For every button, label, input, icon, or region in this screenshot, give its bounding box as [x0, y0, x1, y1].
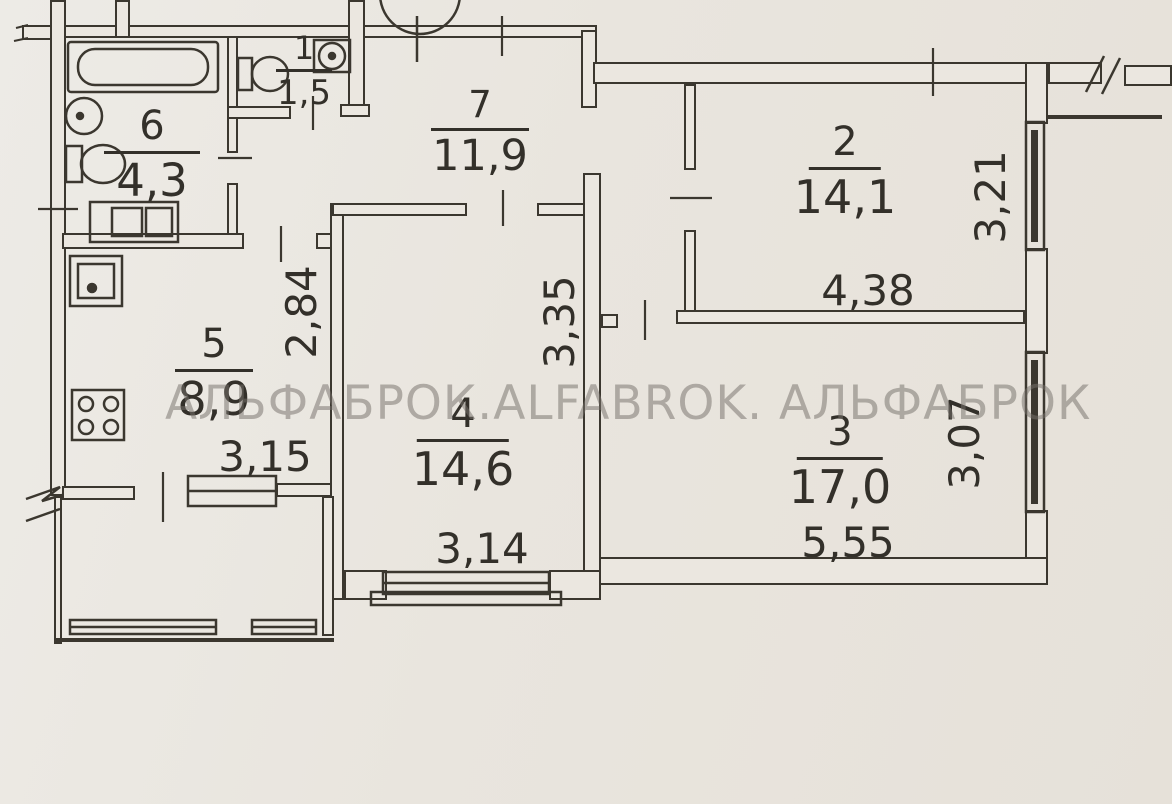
- room-7-label: 7 11,9: [431, 86, 529, 178]
- dim-room4-depth: 3,35: [539, 275, 581, 369]
- room-number: 5: [201, 324, 226, 364]
- stove: [72, 390, 124, 440]
- room-number: 6: [139, 106, 164, 146]
- room-number: 1: [294, 32, 314, 64]
- balcony-glazing: [70, 620, 316, 634]
- break-mark-top-right: [1086, 56, 1120, 94]
- room-number: 7: [468, 86, 492, 123]
- dim-room4-width: 3,14: [435, 528, 529, 570]
- dim-kitchen-depth: 2,84: [281, 265, 323, 359]
- bathroom-sink: [66, 98, 102, 134]
- room-area: 14,1: [794, 174, 896, 220]
- break-mark-left: [26, 487, 62, 521]
- kitchen-sink: [70, 256, 122, 306]
- break-mark-top-left: [14, 25, 28, 41]
- room-area: 1,5: [277, 76, 331, 110]
- vent-circle: [380, 0, 460, 62]
- dim-room2-width: 4,38: [821, 270, 915, 312]
- room-2-label: 2 14,1: [794, 122, 896, 220]
- room-number: 2: [832, 122, 857, 162]
- dim-kitchen-width: 3,15: [218, 436, 312, 478]
- bathtub: [68, 42, 218, 92]
- dim-room2-depth: 3,21: [970, 150, 1012, 244]
- floor-plan-photo: 6 4,3 1 1,5 7 11,9 2 14,1 5 8,9 4 14,6 3…: [0, 0, 1172, 804]
- washing-machine: [90, 202, 178, 242]
- fraction-line: [276, 69, 332, 72]
- room-area: 11,9: [432, 135, 528, 178]
- room-area: 14,6: [412, 446, 514, 492]
- room-1-label: 1 1,5: [276, 32, 332, 110]
- room-6-label: 6 4,3: [104, 106, 200, 203]
- room-area: 17,0: [789, 464, 891, 510]
- room-area: 4,3: [116, 158, 188, 203]
- dim-room3-width: 5,55: [801, 522, 895, 564]
- window-room2: [1026, 122, 1044, 250]
- watermark: АЛЬФАБРОК.ALFABROK. АЛЬФАБРОК: [165, 376, 1055, 431]
- window-room4: [371, 572, 561, 605]
